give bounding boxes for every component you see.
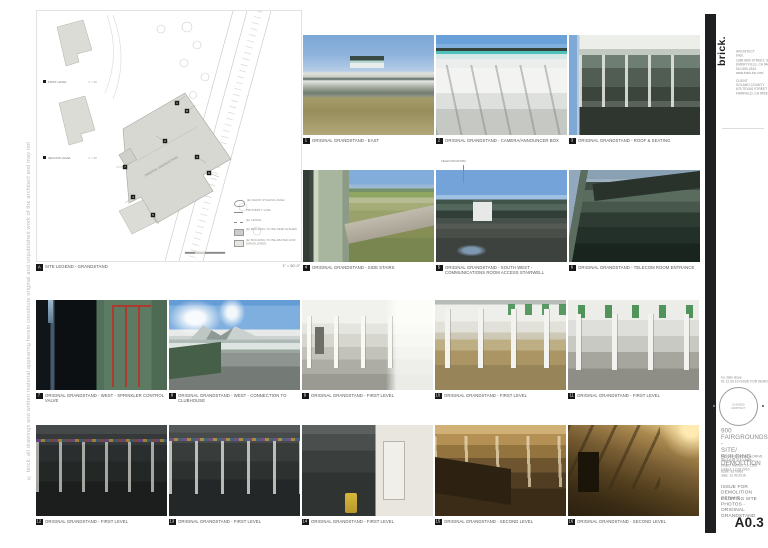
photo-caption: 12 ORIGINAL GRANDSTAND - FIRST LEVEL bbox=[36, 519, 167, 528]
plan-letter-badge: A bbox=[36, 264, 43, 271]
photo-caption-text: ORIGINAL GRANDSTAND - SOUTH WEST - COMMU… bbox=[445, 265, 568, 283]
plan-scale-text: 1" = 50'-0" bbox=[268, 264, 300, 271]
photo-16 bbox=[568, 425, 699, 516]
photo-row-4: 12 ORIGINAL GRANDSTAND - FIRST LEVEL 13 … bbox=[36, 425, 699, 528]
photo-cell: 9 ORIGINAL GRANDSTAND - FIRST LEVEL bbox=[302, 300, 433, 411]
photo-caption-text: ORIGINAL GRANDSTAND - CAMERA/ANNOUNCER B… bbox=[445, 138, 568, 147]
photo-cell: 5 ORIGINAL GRANDSTAND - SOUTH WEST - COM… bbox=[436, 170, 567, 283]
plan-caption-text: SITE LEGEND - GRANDSTAND bbox=[45, 264, 266, 273]
photo-cell: 10 ORIGINAL GRANDSTAND - FIRST LEVEL bbox=[435, 300, 566, 411]
photo-number-badge: 1 bbox=[303, 138, 310, 145]
photo-caption-text: ORIGINAL GRANDSTAND - FIRST LEVEL bbox=[311, 393, 434, 402]
photo-cell: 13 ORIGINAL GRANDSTAND - FIRST LEVEL bbox=[169, 425, 300, 528]
photo-cell: 14 ORIGINAL GRANDSTAND - FIRST LEVEL bbox=[302, 425, 433, 528]
photo-number-badge: 10 bbox=[435, 393, 442, 400]
legend-item: (E) FENCE bbox=[234, 219, 298, 226]
photo-caption: 5 ORIGINAL GRANDSTAND - SOUTH WEST - COM… bbox=[436, 265, 567, 283]
photo-14 bbox=[302, 425, 433, 516]
photo-cell: 3 ORIGINAL GRANDSTAND - ROOF & SEATING bbox=[569, 35, 700, 147]
photo-cell: 1 ORIGINAL GRANDSTAND - EAST bbox=[303, 35, 434, 147]
photo-cell: 12 ORIGINAL GRANDSTAND - FIRST LEVEL bbox=[36, 425, 167, 528]
photo-cell: 11 ORIGINAL GRANDSTAND - FIRST LEVEL bbox=[568, 300, 699, 411]
photo-caption-text: ORIGINAL GRANDSTAND - ROOF & SEATING bbox=[578, 138, 701, 147]
photo-caption: 14 ORIGINAL GRANDSTAND - FIRST LEVEL bbox=[302, 519, 433, 528]
telecom-room-annotation: TELECOM ROOM bbox=[441, 160, 531, 166]
photo-cell: 15 ORIGINAL GRANDSTAND - SECOND LEVEL bbox=[435, 425, 566, 528]
legend-item: (E) BUILDING TO BE ABATED AND DEMOLISHED bbox=[234, 239, 298, 253]
plan-caption: A SITE LEGEND - GRANDSTAND 1" = 50'-0" bbox=[36, 264, 300, 273]
cloud-symbol-icon bbox=[234, 200, 245, 207]
photo-caption: 16 ORIGINAL GRANDSTAND - SECOND LEVEL bbox=[568, 519, 699, 528]
drawing-sheet: © brick. all drawings and written materi… bbox=[0, 0, 768, 548]
photo-number-badge: 8 bbox=[169, 393, 176, 400]
photo-cell: 4 ORIGINAL GRANDSTAND - SIDE STAIRS bbox=[303, 170, 434, 283]
firm-logo: brick. bbox=[716, 14, 728, 66]
photo-caption-text: ORIGINAL GRANDSTAND - SIDE STAIRS bbox=[312, 265, 435, 274]
annotation-leader-line bbox=[463, 165, 464, 183]
scale-bar bbox=[185, 252, 225, 254]
legend-item: (E) DEMO STAGING AREA bbox=[234, 199, 298, 207]
photo-caption-text: ORIGINAL GRANDSTAND - SECOND LEVEL bbox=[577, 519, 700, 528]
legend-label: PROPERTY LINE bbox=[246, 209, 298, 216]
legend-label: (E) FENCE bbox=[246, 219, 298, 226]
photo-cell: 2 ORIGINAL GRANDSTAND - CAMERA/ANNOUNCER… bbox=[436, 35, 567, 147]
photo-caption-text: ORIGINAL GRANDSTAND - FIRST LEVEL bbox=[444, 393, 567, 402]
photo-caption: 11 ORIGINAL GRANDSTAND - FIRST LEVEL bbox=[568, 393, 699, 402]
photo-cell: 8 ORIGINAL GRANDSTAND - WEST - CONNECTIO… bbox=[169, 300, 300, 411]
photo-caption: 15 ORIGINAL GRANDSTAND - SECOND LEVEL bbox=[435, 519, 566, 528]
photo-caption: 10 ORIGINAL GRANDSTAND - FIRST LEVEL bbox=[435, 393, 566, 402]
photo-caption-text: ORIGINAL GRANDSTAND - EAST bbox=[312, 138, 435, 147]
photo-cell: 7 ORIGINAL GRANDSTAND - WEST - SPRINKLER… bbox=[36, 300, 167, 411]
photo-caption: 13 ORIGINAL GRANDSTAND - FIRST LEVEL bbox=[169, 519, 300, 528]
architect-stamp: LICENSED ARCHITECT bbox=[719, 387, 758, 426]
photo-7 bbox=[36, 300, 167, 390]
site-plan-panel: FIRST LEVEL 1" = 40' SECOND LEVEL 1" = 4… bbox=[36, 10, 302, 262]
photo-caption-text: ORIGINAL GRANDSTAND - SECOND LEVEL bbox=[444, 519, 567, 528]
photo-caption-text: ORIGINAL GRANDSTAND - WEST - SPRINKLER C… bbox=[45, 393, 168, 411]
photo-6 bbox=[569, 170, 700, 262]
photo-row-1: 1 ORIGINAL GRANDSTAND - EAST 2 ORIGINAL … bbox=[303, 35, 700, 147]
photo-3 bbox=[569, 35, 700, 135]
legend-label: (E) DEMO STAGING AREA bbox=[247, 199, 298, 206]
photo-12 bbox=[36, 425, 167, 516]
line-symbol-icon bbox=[234, 210, 244, 213]
photo-13 bbox=[169, 425, 300, 516]
photo-cell: 16 ORIGINAL GRANDSTAND - SECOND LEVEL bbox=[568, 425, 699, 528]
keyplan2-scale: 1" = 40' bbox=[88, 156, 97, 160]
photo-caption-text: ORIGINAL GRANDSTAND - FIRST LEVEL bbox=[178, 519, 301, 528]
photo-caption-text: ORIGINAL GRANDSTAND - TELECOM ROOM ENTRA… bbox=[578, 265, 701, 274]
photo-row-3: 7 ORIGINAL GRANDSTAND - WEST - SPRINKLER… bbox=[36, 300, 699, 411]
photo-number-badge: 12 bbox=[36, 519, 43, 526]
photo-5 bbox=[436, 170, 567, 262]
photo-caption: 4 ORIGINAL GRANDSTAND - SIDE STAIRS bbox=[303, 265, 434, 274]
copyright-note: © brick. all drawings and written materi… bbox=[26, 140, 32, 480]
sheet-number: A0.3 bbox=[718, 515, 764, 530]
photo-11 bbox=[568, 300, 699, 390]
photo-cell: 6 ORIGINAL GRANDSTAND - TELECOM ROOM ENT… bbox=[569, 170, 700, 283]
dashed-line-symbol-icon bbox=[234, 220, 244, 223]
legend-item: PROPERTY LINE bbox=[234, 209, 298, 216]
legend-label: (E) BUILDING TO BE ABATED AND DEMOLISHED bbox=[246, 239, 298, 253]
photo-10 bbox=[435, 300, 566, 390]
photo-number-badge: 3 bbox=[569, 138, 576, 145]
photo-number-badge: 6 bbox=[569, 265, 576, 272]
architect-info: ARCHITECT brick. 1286 66th STREET, STUDI… bbox=[736, 50, 766, 97]
photo-number-badge: 5 bbox=[436, 265, 443, 272]
photo-caption: 1 ORIGINAL GRANDSTAND - EAST bbox=[303, 138, 434, 147]
photo-caption: 9 ORIGINAL GRANDSTAND - FIRST LEVEL bbox=[302, 393, 433, 402]
photo-caption: 2 ORIGINAL GRANDSTAND - CAMERA/ANNOUNCER… bbox=[436, 138, 567, 147]
titleblock-contact: ARCHITECT brick. 1286 66th STREET, STUDI… bbox=[736, 50, 766, 128]
photo-4 bbox=[303, 170, 434, 262]
photo-caption: 7 ORIGINAL GRANDSTAND - WEST - SPRINKLER… bbox=[36, 393, 167, 411]
light-box-symbol-icon bbox=[234, 240, 244, 247]
photo-number-badge: 15 bbox=[435, 519, 442, 526]
photo-number-badge: 13 bbox=[169, 519, 176, 526]
photo-1 bbox=[303, 35, 434, 135]
photo-number-badge: 14 bbox=[302, 519, 309, 526]
photo-8 bbox=[169, 300, 300, 390]
plan-legend: (E) DEMO STAGING AREA PROPERTY LINE (E) … bbox=[234, 199, 298, 255]
photo-number-badge: 16 bbox=[568, 519, 575, 526]
photo-caption-text: ORIGINAL GRANDSTAND - FIRST LEVEL bbox=[45, 519, 168, 528]
keyplan2-label: SECOND LEVEL bbox=[48, 156, 71, 160]
photo-number-badge: 9 bbox=[302, 393, 309, 400]
photo-caption-text: ORIGINAL GRANDSTAND - FIRST LEVEL bbox=[577, 393, 700, 402]
scale-date-notes: scale: as noted date: 12.09.2016 bbox=[721, 470, 767, 485]
titleblock-divider bbox=[722, 128, 764, 129]
legend-label: (E) BUILDING TO BE DEMOLISHED bbox=[246, 228, 298, 235]
photo-number-badge: 7 bbox=[36, 393, 43, 400]
photo-number-badge: 4 bbox=[303, 265, 310, 272]
keyplan1-label: FIRST LEVEL bbox=[48, 80, 67, 84]
photo-9 bbox=[302, 300, 433, 390]
photo-caption-text: ORIGINAL GRANDSTAND - FIRST LEVEL bbox=[311, 519, 434, 528]
photo-caption-text: ORIGINAL GRANDSTAND - WEST - CONNECTION … bbox=[178, 393, 301, 411]
legend-item: (E) BUILDING TO BE DEMOLISHED bbox=[234, 228, 298, 236]
photo-15 bbox=[435, 425, 566, 516]
photo-caption: 6 ORIGINAL GRANDSTAND - TELECOM ROOM ENT… bbox=[569, 265, 700, 274]
photo-number-badge: 2 bbox=[436, 138, 443, 145]
filled-box-symbol-icon bbox=[234, 229, 244, 236]
photo-number-badge: 11 bbox=[568, 393, 575, 400]
photo-2 bbox=[436, 35, 567, 135]
photo-row-2: TELECOM ROOM 4 ORIGINAL GRANDSTAND - SID… bbox=[303, 170, 700, 283]
photo-caption: 8 ORIGINAL GRANDSTAND - WEST - CONNECTIO… bbox=[169, 393, 300, 411]
titleblock-bar bbox=[705, 14, 716, 533]
keyplan1-scale: 1" = 40' bbox=[88, 80, 97, 84]
photo-caption: 3 ORIGINAL GRANDSTAND - ROOF & SEATING bbox=[569, 138, 700, 147]
